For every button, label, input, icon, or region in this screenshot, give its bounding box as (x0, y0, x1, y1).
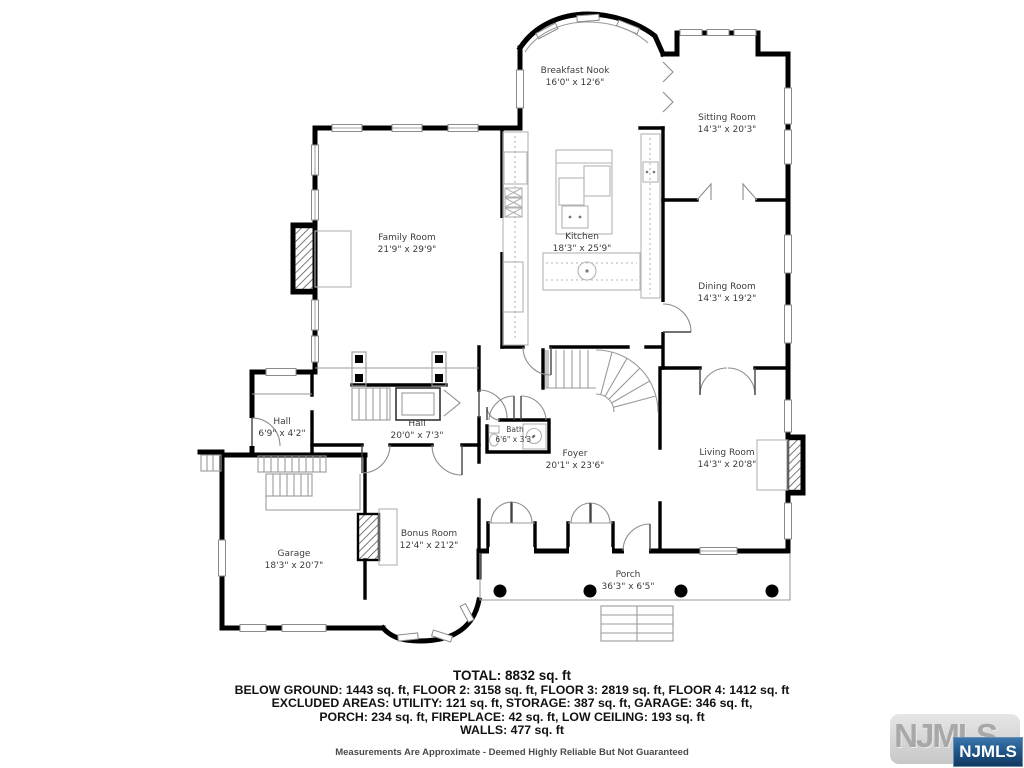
svg-text:12'4" x 21'2": 12'4" x 21'2" (400, 541, 459, 551)
porch-column (766, 585, 779, 598)
svg-text:20'1" x 23'6": 20'1" x 23'6" (546, 461, 605, 471)
floor-plan-page: Breakfast Nook 16'0" x 12'6" Sitting Roo… (0, 0, 1024, 768)
svg-text:6'9" x 4'2": 6'9" x 4'2" (258, 429, 305, 439)
excluded-areas-1: EXCLUDED AREAS: UTILITY: 121 sq. ft, STO… (0, 697, 1024, 710)
room-label-foyer: Foyer 20'1" x 23'6" (546, 449, 605, 471)
doors (252, 62, 757, 551)
svg-text:Living Room: Living Room (699, 448, 754, 458)
floor-areas: BELOW GROUND: 1443 sq. ft, FLOOR 2: 3158… (0, 684, 1024, 697)
area-summary: TOTAL: 8832 sq. ft BELOW GROUND: 1443 sq… (0, 668, 1024, 758)
room-label-garage: Garage 18'3" x 20'7" (265, 549, 324, 571)
njmls-logo-badge: NJMLS (953, 737, 1023, 767)
porch-column (494, 585, 507, 598)
hall-stair (352, 388, 390, 420)
room-label-hall-small: Hall 6'9" x 4'2" (258, 417, 305, 439)
excluded-areas-2: PORCH: 234 sq. ft, FIREPLACE: 42 sq. ft,… (0, 711, 1024, 724)
room-label-hall-long: Hall 20'0" x 7'3" (391, 419, 444, 441)
svg-text:18'3" x 20'7": 18'3" x 20'7" (265, 561, 324, 571)
foyer-curved-stair (546, 350, 658, 412)
porch-column (675, 585, 688, 598)
walls-area: WALLS: 477 sq. ft (0, 724, 1024, 737)
svg-text:Garage: Garage (278, 549, 311, 559)
svg-text:Breakfast Nook: Breakfast Nook (541, 66, 610, 76)
svg-text:14'3" x 20'8": 14'3" x 20'8" (698, 460, 757, 470)
svg-text:36'3" x 6'5": 36'3" x 6'5" (602, 582, 655, 592)
interior-walls (312, 128, 788, 598)
room-label-porch: Porch 36'3" x 6'5" (602, 570, 655, 592)
svg-text:6'6" x 3'3": 6'6" x 3'3" (495, 435, 534, 444)
room-label-bonus-room: Bonus Room 12'4" x 21'2" (400, 529, 459, 551)
garage-steps (258, 456, 360, 510)
svg-text:Family Room: Family Room (378, 233, 435, 243)
floor-plan-svg: Breakfast Nook 16'0" x 12'6" Sitting Roo… (0, 0, 1024, 664)
room-label-family-room: Family Room 21'9" x 29'9" (378, 233, 437, 255)
svg-text:16'0" x 12'6": 16'0" x 12'6" (546, 78, 605, 88)
room-label-bath: Bath 6'6" x 3'3" (495, 425, 534, 444)
elevator (396, 388, 440, 420)
svg-text:18'3" x 25'9": 18'3" x 25'9" (553, 244, 612, 254)
room-label-dining-room: Dining Room 14'3" x 19'2" (698, 282, 757, 304)
room-labels: Breakfast Nook 16'0" x 12'6" Sitting Roo… (258, 66, 756, 592)
svg-text:14'3" x 20'3": 14'3" x 20'3" (698, 125, 757, 135)
porch-steps (601, 606, 673, 641)
kitchen-counter (543, 253, 640, 290)
disclaimer: Measurements Are Approximate - Deemed Hi… (0, 747, 1024, 758)
family-room-fireplace (294, 227, 314, 290)
njmls-watermark: NJMLS NJMLS (884, 710, 1024, 768)
svg-text:Bonus Room: Bonus Room (401, 529, 457, 539)
svg-text:20'0" x 7'3": 20'0" x 7'3" (391, 431, 444, 441)
svg-text:Foyer: Foyer (563, 449, 588, 459)
room-label-living-room: Living Room 14'3" x 20'8" (698, 448, 757, 470)
living-room-fireplace (788, 439, 802, 491)
room-label-breakfast-nook: Breakfast Nook 16'0" x 12'6" (541, 66, 610, 88)
svg-text:Sitting Room: Sitting Room (698, 113, 756, 123)
room-label-kitchen: Kitchen 18'3" x 25'9" (553, 232, 612, 254)
svg-text:21'9" x 29'9": 21'9" x 29'9" (378, 245, 437, 255)
fireplaces (294, 227, 802, 565)
svg-text:Hall: Hall (408, 419, 425, 429)
total-area: TOTAL: 8832 sq. ft (0, 668, 1024, 683)
svg-text:Porch: Porch (616, 570, 641, 580)
garage-chimney (358, 514, 379, 560)
stoop-steps (201, 455, 221, 471)
svg-text:14'3" x 19'2": 14'3" x 19'2" (698, 294, 757, 304)
svg-text:Bath: Bath (506, 425, 524, 434)
porch-column (584, 585, 597, 598)
svg-text:Hall: Hall (273, 417, 290, 427)
svg-text:Dining Room: Dining Room (698, 282, 756, 292)
svg-text:Kitchen: Kitchen (565, 232, 599, 242)
room-label-sitting-room: Sitting Room 14'3" x 20'3" (698, 113, 757, 135)
